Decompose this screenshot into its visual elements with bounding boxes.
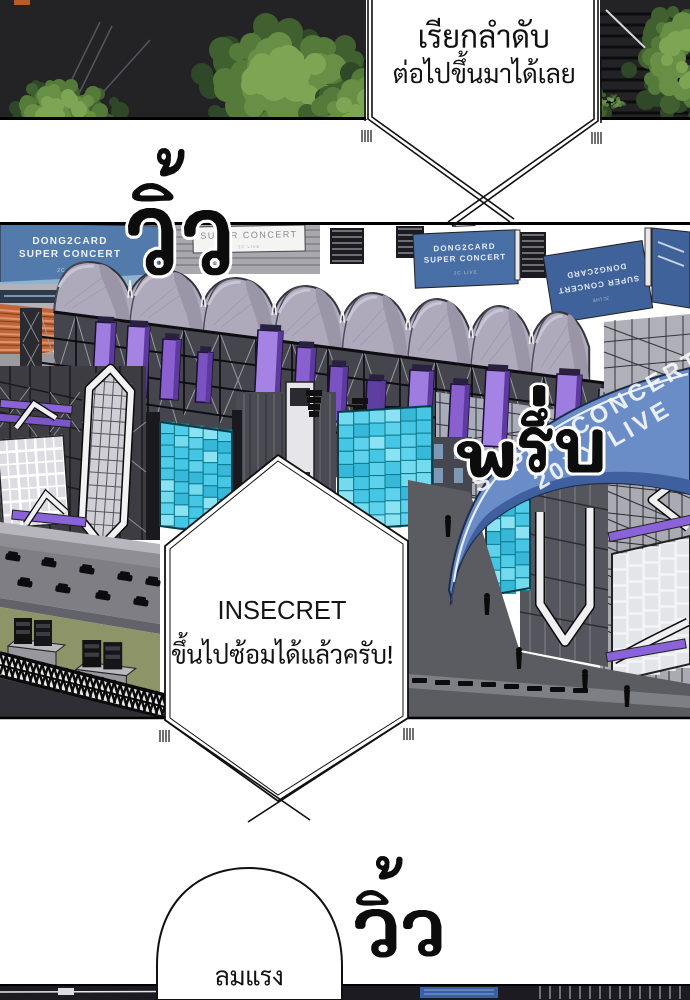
svg-text:2C LIVE: 2C LIVE [238,244,260,249]
svg-text:SUPER CONCERT: SUPER CONCERT [19,249,121,260]
svg-text:2C LIVE: 2C LIVE [454,269,478,275]
svg-text:DONG2CARD: DONG2CARD [32,236,107,247]
svg-text:INSECRET: INSECRET [218,597,347,625]
